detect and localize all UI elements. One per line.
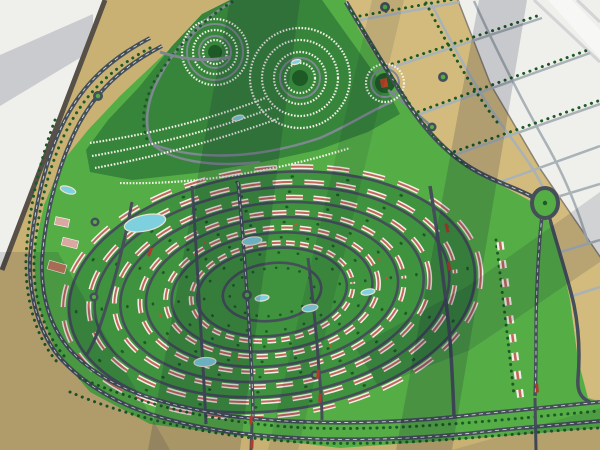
red-median-marker	[318, 393, 322, 402]
red-median-marker	[249, 415, 252, 424]
red-median-marker	[250, 439, 253, 448]
red-median-marker	[316, 369, 320, 378]
scale-model-scene	[0, 0, 600, 450]
photo-of-architectural-model	[0, 0, 600, 450]
cluster-park	[292, 70, 308, 86]
